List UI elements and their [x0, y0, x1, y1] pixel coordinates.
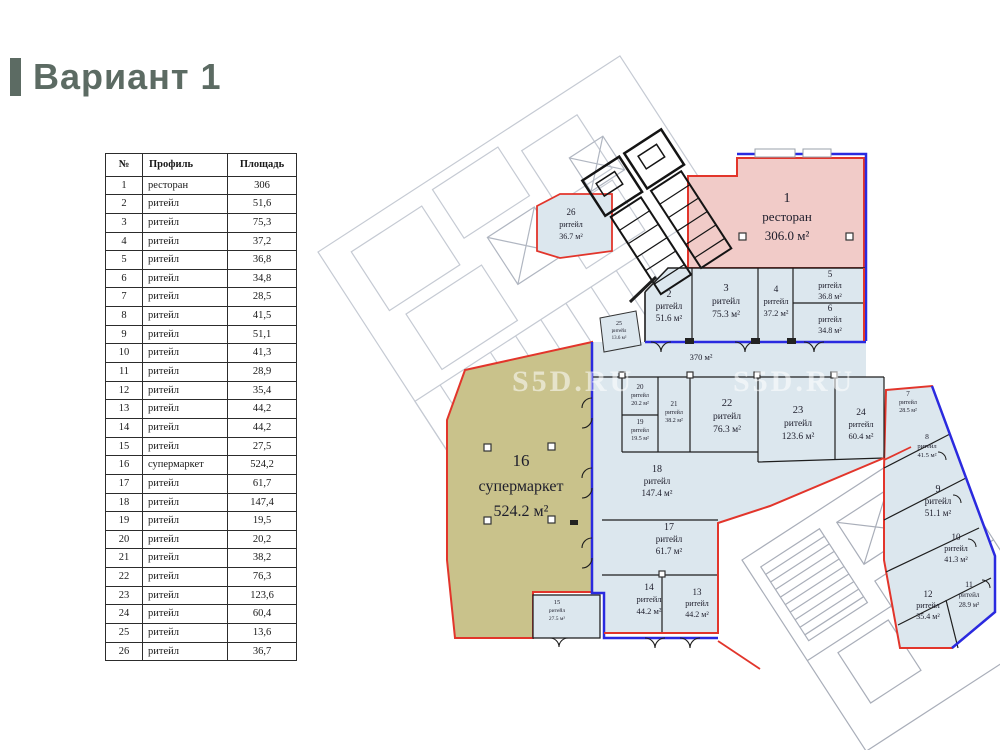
- room-20-label-line3: 20.2 м²: [631, 401, 649, 407]
- room-22-label-line1: 22: [722, 398, 733, 409]
- room-16-label-line2: супермаркет: [479, 478, 564, 495]
- room-6-label-line2: ритейл: [818, 315, 842, 324]
- room-11-label-line2: ритейл: [959, 591, 980, 599]
- room-16-label-line3: 524.2 м²: [494, 503, 549, 520]
- floor-plan: S5D.RU S5D.RU 370 м² 1ресторан306.0 м²2р…: [0, 0, 1000, 750]
- room-25-label-line3: 13.6 м²: [612, 335, 627, 341]
- room-20-label-line1: 20: [637, 383, 645, 391]
- room-15-area: [533, 595, 600, 638]
- room-5-label-line3: 36.8 м²: [818, 292, 842, 301]
- room-3-label-line2: ритейл: [712, 296, 740, 307]
- room-15-label-line1: 15: [554, 599, 561, 606]
- room-21-label-line2: ритейл: [665, 409, 683, 416]
- room-21-label-line3: 38.2 м²: [665, 418, 683, 424]
- room-6-label-line3: 34.8 м²: [818, 326, 842, 335]
- room-5-label-line1: 5: [828, 269, 833, 279]
- room-20-label-line2: ритейл: [631, 392, 649, 399]
- room-14-label-line3: 44.2 м²: [637, 606, 662, 616]
- room-4-label-line2: ритейл: [763, 296, 789, 306]
- room-14-label-line1: 14: [644, 583, 654, 593]
- room-12-label-line3: 35.4 м²: [916, 612, 940, 621]
- room-2-label-line1: 2: [667, 289, 672, 300]
- room-3-label-line3: 75.3 м²: [712, 310, 740, 320]
- corridor-area-label: 370 м²: [690, 352, 713, 362]
- room-12-label-line1: 12: [924, 589, 933, 599]
- room-4-label-line3: 37.2 м²: [764, 308, 789, 318]
- room-7-label-line3: 28.5 м²: [899, 408, 917, 414]
- room-1-label-line2: ресторан: [762, 209, 812, 224]
- room-23-label-line2: ритейл: [784, 418, 812, 429]
- room-13-label-line1: 13: [693, 587, 703, 597]
- room-2-label-line2: ритейл: [656, 301, 683, 311]
- room-26-label-line2: ритейл: [559, 220, 583, 229]
- room-10-label-line2: ритейл: [944, 544, 968, 553]
- room-18-label-line2: ритейл: [644, 476, 671, 486]
- room-1-label-line3: 306.0 м²: [765, 228, 810, 243]
- room-23-label-line3: 123.6 м²: [782, 432, 815, 442]
- room-2-label-line3: 51.6 м²: [656, 313, 683, 323]
- room-23-label-line1: 23: [793, 405, 804, 416]
- room-17-label-line2: ритейл: [656, 534, 683, 544]
- room-24-label-line1: 24: [856, 408, 866, 418]
- room-18-label-line1: 18: [652, 464, 662, 475]
- room-13-label-line2: ритейл: [685, 599, 709, 608]
- room-10-label-line1: 10: [952, 532, 962, 542]
- room-24-label-line2: ритейл: [848, 419, 874, 429]
- room-9-label-line1: 9: [936, 484, 941, 495]
- room-19-label-line1: 19: [637, 418, 645, 426]
- room-21-label-line1: 21: [671, 400, 679, 408]
- room-5-label-line2: ритейл: [818, 281, 842, 290]
- room-16-label-line1: 16: [513, 451, 530, 470]
- page: Вариант 1 № Профиль Площадь 1ресторан306…: [0, 0, 1000, 750]
- room-19-label-line3: 19.5 м²: [631, 436, 649, 442]
- room-10-label-line3: 41.3 м²: [944, 555, 968, 564]
- room-4-label-line1: 4: [774, 285, 779, 295]
- room-22-label-line3: 76.3 м²: [713, 425, 741, 435]
- room-9-label-line2: ритейл: [925, 496, 952, 506]
- room-7-label-line1: 7: [906, 390, 910, 398]
- room-11-label-line1: 11: [965, 580, 973, 589]
- watermark-right: S5D.RU: [733, 365, 855, 398]
- room-1-label-line1: 1: [784, 191, 791, 206]
- room-9-label-line3: 51.1 м²: [925, 508, 952, 518]
- room-18-label-line3: 147.4 м²: [642, 488, 673, 498]
- watermark-left: S5D.RU: [512, 365, 634, 398]
- room-13-label-line3: 44.2 м²: [685, 610, 709, 619]
- room-25-label-line2: ритейл: [612, 329, 627, 334]
- room-14-label-line2: ритейл: [636, 594, 662, 604]
- room-15-label-line2: ритейл: [549, 607, 565, 614]
- room-22-label-line2: ритейл: [713, 411, 741, 422]
- room-19-label-line2: ритейл: [631, 427, 649, 434]
- window-bays: [755, 149, 831, 157]
- room-15-label-line3: 27.5 м²: [549, 616, 565, 622]
- room-24-label-line3: 60.4 м²: [849, 431, 874, 441]
- room-17-label-line3: 61.7 м²: [656, 546, 683, 556]
- room-26-label-line3: 36.7 м²: [559, 232, 583, 241]
- room-7-label-line2: ритейл: [899, 399, 917, 406]
- room-17-label-line1: 17: [664, 522, 674, 533]
- room-3-label-line1: 3: [723, 283, 728, 294]
- room-6-label-line1: 6: [828, 303, 833, 313]
- room-26-label-line1: 26: [567, 207, 577, 217]
- room-11-label-line3: 28.9 м²: [959, 601, 980, 609]
- room-8-label-line3: 41.5 м²: [917, 452, 936, 459]
- room-25-label-line1: 25: [616, 321, 622, 327]
- room-8-label-line1: 8: [925, 432, 929, 441]
- room-12-label-line2: ритейл: [916, 601, 940, 610]
- room-8-label-line2: ритейл: [917, 443, 937, 450]
